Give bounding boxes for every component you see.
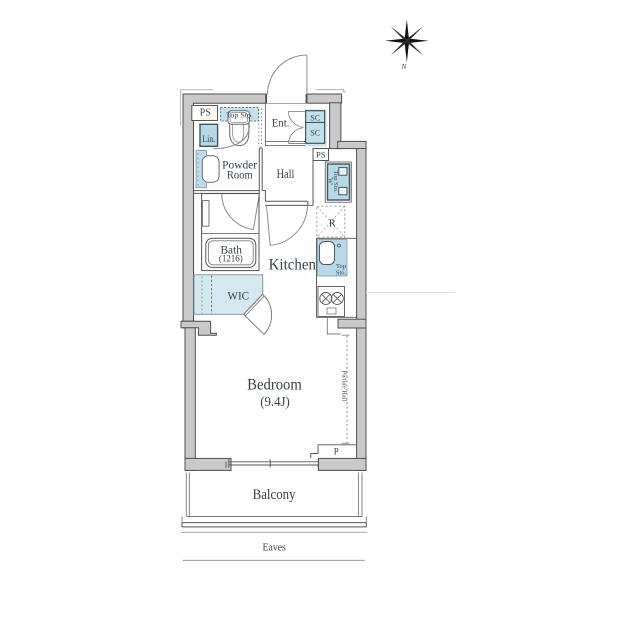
svg-text:SC: SC: [310, 128, 320, 138]
svg-text:Lin.: Lin.: [202, 134, 215, 144]
svg-text:Kitchen: Kitchen: [269, 256, 316, 273]
svg-text:Sto.: Sto.: [336, 270, 347, 277]
svg-text:PS: PS: [200, 108, 211, 119]
svg-text:WIC: WIC: [228, 289, 250, 303]
svg-text:N: N: [401, 63, 407, 71]
svg-text:Balcony: Balcony: [253, 487, 297, 503]
svg-text:Top Sto.: Top Sto.: [226, 112, 253, 120]
svg-text:W': W': [327, 178, 333, 185]
svg-text:SC: SC: [310, 112, 320, 122]
svg-text:PS: PS: [316, 150, 326, 160]
svg-text:Eaves: Eaves: [263, 543, 286, 554]
svg-text:R: R: [329, 218, 336, 229]
svg-text:Picture Rail: Picture Rail: [340, 371, 347, 402]
svg-text:Bedroom: Bedroom: [247, 377, 302, 394]
svg-text:Room: Room: [227, 168, 253, 181]
svg-text:P: P: [334, 446, 339, 456]
svg-text:Hall: Hall: [277, 167, 295, 181]
svg-text:Top Sto.: Top Sto.: [332, 170, 339, 193]
svg-text:(9.4J): (9.4J): [260, 394, 290, 409]
svg-text:Ent.: Ent.: [272, 118, 290, 130]
svg-text:(1216): (1216): [219, 253, 243, 264]
